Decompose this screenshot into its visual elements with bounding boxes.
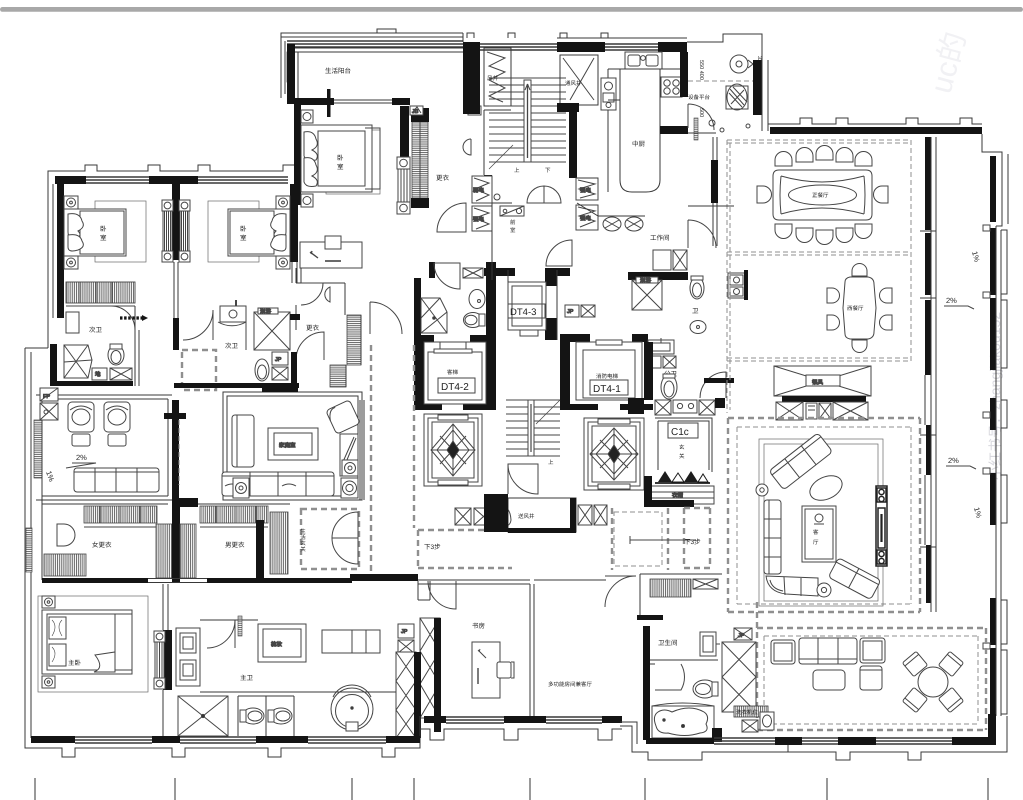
svg-text:弱电: 弱电 bbox=[473, 187, 485, 194]
svg-text:主卧: 主卧 bbox=[68, 659, 82, 667]
svg-text:2%: 2% bbox=[76, 453, 87, 462]
svg-text:梳妆: 梳妆 bbox=[271, 641, 283, 648]
svg-text:厅: 厅 bbox=[813, 539, 819, 546]
svg-text:JP: JP bbox=[401, 629, 408, 635]
svg-text:女更衣: 女更衣 bbox=[92, 541, 112, 549]
svg-text:男更衣: 男更衣 bbox=[225, 541, 245, 549]
svg-text:卧: 卧 bbox=[337, 154, 344, 162]
svg-text:上: 上 bbox=[548, 459, 554, 466]
svg-text:客梯: 客梯 bbox=[447, 369, 459, 376]
svg-text:2%: 2% bbox=[948, 456, 959, 465]
svg-text:前: 前 bbox=[510, 219, 516, 226]
svg-text:FP: FP bbox=[43, 394, 50, 400]
svg-text:强电: 强电 bbox=[580, 215, 592, 222]
svg-text:洗衣机位: 洗衣机位 bbox=[736, 709, 759, 716]
svg-text:DT4-1: DT4-1 bbox=[593, 384, 621, 395]
svg-text:淋浴: 淋浴 bbox=[260, 308, 272, 315]
svg-text:多功能房间兼客厅: 多功能房间兼客厅 bbox=[548, 681, 593, 688]
svg-text:500: 500 bbox=[698, 108, 704, 117]
svg-text:次卫: 次卫 bbox=[225, 342, 239, 350]
svg-text:正餐厅: 正餐厅 bbox=[812, 192, 829, 199]
svg-text:更衣: 更衣 bbox=[436, 174, 450, 182]
svg-text:卧: 卧 bbox=[240, 225, 247, 233]
svg-text:DT4-3: DT4-3 bbox=[510, 307, 536, 318]
svg-text:玄: 玄 bbox=[679, 444, 685, 451]
svg-text:次卫: 次卫 bbox=[89, 326, 103, 334]
svg-text:下: 下 bbox=[545, 167, 551, 174]
svg-text:上: 上 bbox=[514, 167, 520, 174]
svg-text:下3步: 下3步 bbox=[684, 538, 701, 546]
svg-text:淋浴: 淋浴 bbox=[640, 277, 652, 284]
svg-text:主卫: 主卫 bbox=[240, 674, 254, 682]
svg-text:2%: 2% bbox=[946, 296, 957, 305]
svg-text:卫生间: 卫生间 bbox=[658, 639, 678, 647]
svg-text:JP: JP bbox=[567, 309, 574, 315]
svg-text:JP: JP bbox=[738, 633, 745, 639]
svg-text:设备平台: 设备平台 bbox=[688, 94, 711, 101]
svg-text:室: 室 bbox=[510, 227, 516, 234]
svg-text:关: 关 bbox=[679, 453, 685, 460]
svg-text:JP: JP bbox=[275, 357, 282, 363]
svg-text:通风井: 通风井 bbox=[565, 80, 582, 87]
svg-text:卧: 卧 bbox=[100, 225, 107, 233]
svg-text:DT4-2: DT4-2 bbox=[441, 382, 469, 393]
svg-text:中厨: 中厨 bbox=[632, 140, 646, 148]
svg-text:室: 室 bbox=[100, 234, 107, 242]
svg-text:强电: 强电 bbox=[580, 187, 592, 194]
svg-text:送风井: 送风井 bbox=[518, 513, 535, 520]
svg-text:客: 客 bbox=[813, 529, 819, 536]
svg-text:550 400: 550 400 bbox=[698, 60, 704, 80]
svg-text:西餐厅: 西餐厅 bbox=[847, 305, 864, 312]
svg-text:室: 室 bbox=[337, 163, 344, 171]
svg-text:强电: 强电 bbox=[473, 216, 485, 223]
svg-text:生活玄关: 生活玄关 bbox=[299, 528, 306, 552]
svg-text:消防电梯: 消防电梯 bbox=[596, 373, 619, 380]
svg-text:家庭室: 家庭室 bbox=[279, 442, 296, 449]
svg-text:生活阳台: 生活阳台 bbox=[325, 67, 352, 75]
svg-text:JB: JB bbox=[412, 109, 419, 115]
svg-text:银具: 银具 bbox=[812, 379, 824, 386]
svg-text:卫: 卫 bbox=[692, 308, 699, 315]
svg-text:C1c: C1c bbox=[671, 427, 689, 438]
svg-text:衣帽: 衣帽 bbox=[672, 492, 684, 499]
svg-text:地: 地 bbox=[95, 371, 101, 378]
svg-text:下3步: 下3步 bbox=[424, 543, 441, 551]
svg-text:工作间: 工作间 bbox=[650, 234, 670, 242]
svg-text:书房: 书房 bbox=[472, 622, 485, 630]
svg-text:更衣: 更衣 bbox=[306, 324, 320, 332]
svg-text:室: 室 bbox=[240, 234, 247, 242]
